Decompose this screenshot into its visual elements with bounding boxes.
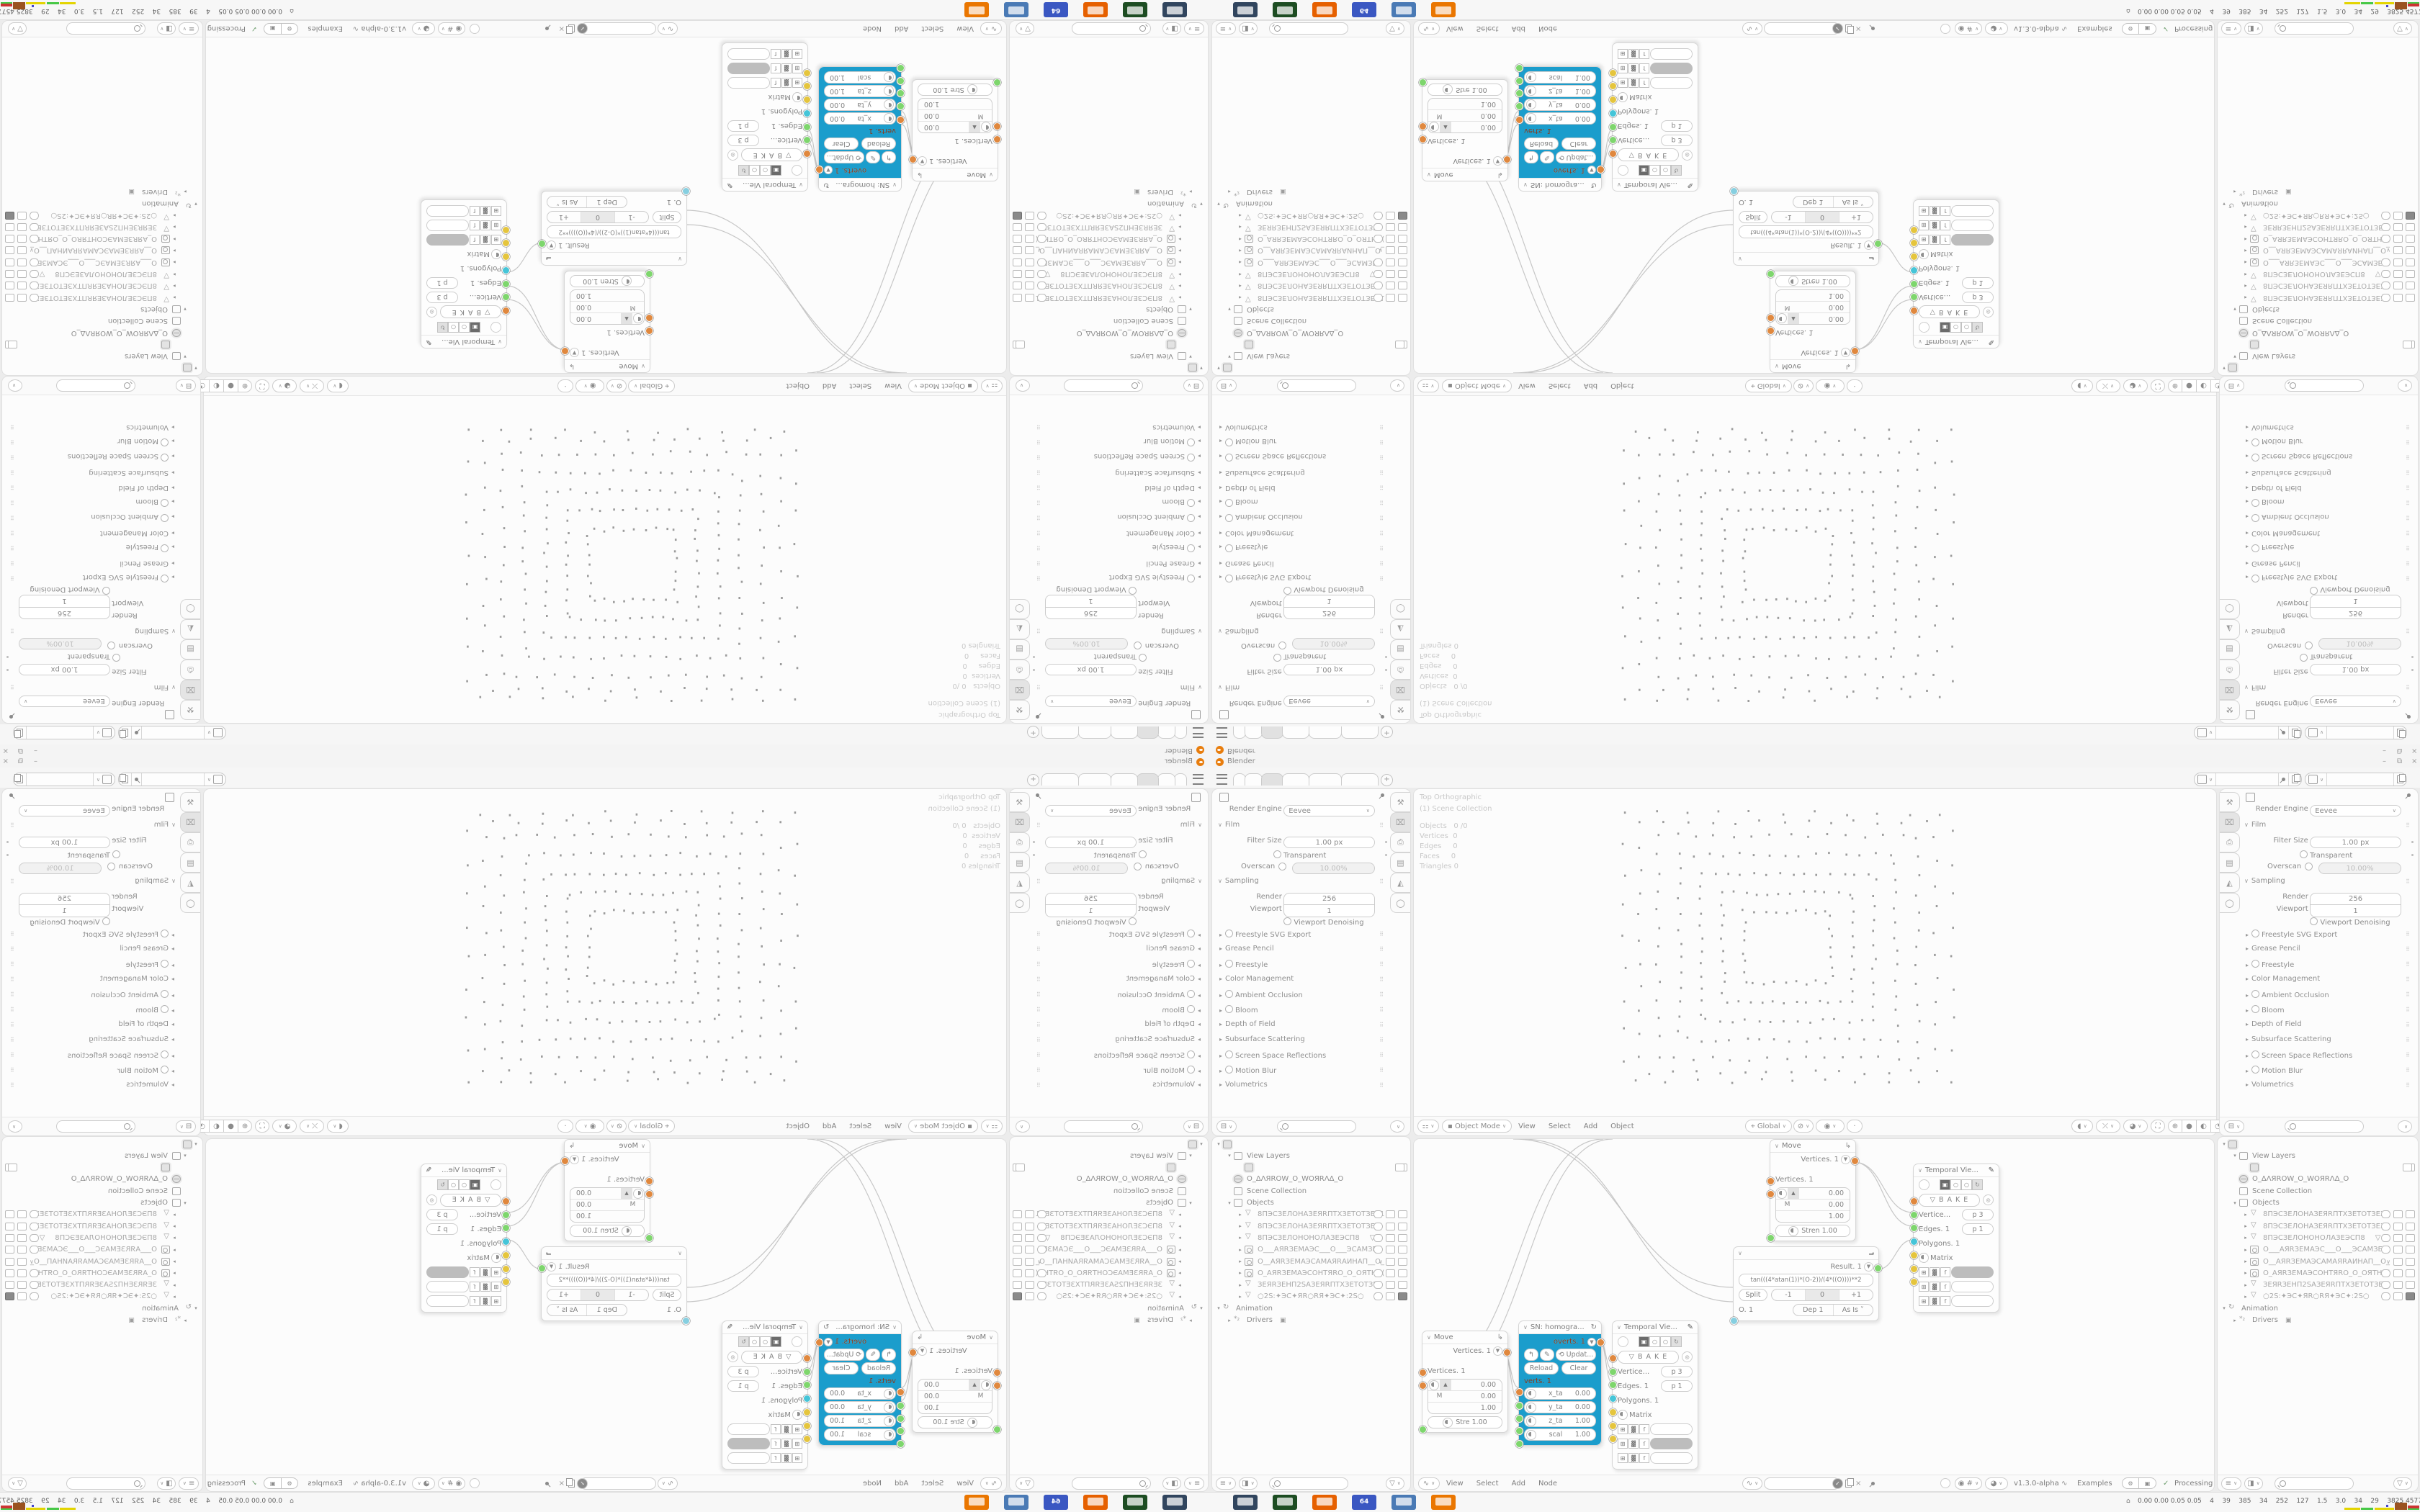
offset-button[interactable]: +1 <box>547 1290 581 1300</box>
properties-tab-view-layer[interactable]: ▤ <box>2220 852 2240 873</box>
outliner-row[interactable]: ▸8ПЭСЗЕЛОНАЗЕЯRПТХЗЕТОТЗЕХ <box>4 1220 178 1232</box>
search-input[interactable] <box>2275 1477 2354 1490</box>
node-move[interactable]: ∨Move↳Vertices. 1▼Vertices. 1▲0.00M0.001… <box>912 79 998 181</box>
new-tab-button[interactable]: + <box>1027 726 1039 738</box>
outliner-row[interactable]: Scene Collection <box>5 1185 189 1197</box>
node-socket[interactable] <box>1767 1177 1775 1185</box>
hide-eye-icon[interactable] <box>1037 1210 1047 1218</box>
datablock-name-field[interactable] <box>141 773 204 786</box>
disable-viewport-icon[interactable] <box>1025 235 1034 243</box>
editor-type-icon[interactable]: ∿∨ <box>980 23 1002 35</box>
hide-eye-icon[interactable] <box>1037 294 1047 302</box>
outliner-row[interactable]: ▾ <box>1215 362 1407 374</box>
output-icon-button[interactable]: ▓ <box>480 235 490 245</box>
outliner-row[interactable]: ▸○2S:✦ЭС✦ЯR○RЯ✦ЭС✦:2S○ <box>2242 1291 2416 1302</box>
datablock-selector-1[interactable]: ∨ <box>2194 726 2302 739</box>
node-socket[interactable] <box>1419 122 1427 130</box>
section-checkbox[interactable] <box>2251 960 2259 968</box>
new-tab-button[interactable]: + <box>1027 774 1039 786</box>
node-socket[interactable] <box>1874 1264 1882 1272</box>
clear-button[interactable]: Clear <box>1561 138 1596 150</box>
checkbox[interactable] <box>2305 863 2313 870</box>
disable-viewport-icon[interactable] <box>1025 258 1034 266</box>
gizmos-dropdown[interactable]: ⤫∨ <box>300 379 324 392</box>
section-checkbox[interactable] <box>1187 1050 1195 1058</box>
options-dropdown[interactable]: ∨ <box>8 379 22 392</box>
menu-view[interactable]: View <box>1518 1122 1536 1130</box>
display-mode-dropdown[interactable]: ◨∨ <box>1239 1477 1258 1490</box>
disable-render-icon[interactable] <box>1013 294 1022 302</box>
hide-eye-icon[interactable] <box>1373 1292 1383 1300</box>
display-mode-dropdown[interactable]: ◨∨ <box>1162 23 1181 35</box>
disable-render-icon[interactable] <box>1013 1210 1022 1218</box>
vector-field[interactable]: 0.00 <box>1798 302 1850 312</box>
display-mode-button[interactable]: ↻ <box>437 322 448 333</box>
outliner-row[interactable]: ▾ <box>1215 1138 1407 1150</box>
disable-viewport-icon[interactable] <box>1386 258 1395 266</box>
formula-field[interactable]: tan(((4*atan(1))*(O-2))/(4*((O))))**2 <box>547 225 681 238</box>
display-mode-button[interactable]: ↻ <box>1671 1336 1682 1347</box>
outliner-row[interactable]: ▾Animation <box>1013 1302 1205 1314</box>
disable-render-icon[interactable] <box>5 235 14 243</box>
disable-viewport-icon[interactable] <box>1386 1258 1395 1266</box>
hide-eye-icon[interactable] <box>30 258 39 266</box>
output-icon-button[interactable]: ſ <box>771 1439 781 1449</box>
output-icon-button[interactable]: ſ <box>771 63 781 73</box>
hide-eye-icon[interactable] <box>2381 1269 2390 1277</box>
node-socket[interactable] <box>1851 1157 1859 1165</box>
editor-type-icon[interactable]: ⊟∨ <box>176 1120 196 1133</box>
output-icon-button[interactable]: ⊞ <box>1919 235 1929 245</box>
node-socket[interactable] <box>1910 253 1918 261</box>
node-socket[interactable] <box>1730 1317 1738 1325</box>
gizmo-toggle[interactable]: ⊘∨ <box>1793 1120 1814 1133</box>
hide-eye-icon[interactable] <box>30 1210 39 1218</box>
editor-type-icon[interactable]: ≡∨ <box>1216 1477 1236 1490</box>
disable-render-icon[interactable] <box>1013 1281 1022 1289</box>
disable-render-icon[interactable] <box>2406 223 2415 231</box>
new-node-tree-button[interactable] <box>470 1478 480 1488</box>
examples-menu[interactable]: Examples <box>2077 25 2112 33</box>
disable-viewport-icon[interactable] <box>1025 1234 1034 1242</box>
outliner-row[interactable]: ▾Objects <box>1013 1197 1194 1209</box>
disable-render-icon[interactable] <box>2406 1234 2415 1242</box>
outliner-row[interactable] <box>1011 1162 1183 1174</box>
section-checkbox[interactable] <box>2251 1050 2259 1058</box>
disable-viewport-icon[interactable] <box>1386 270 1395 278</box>
node-socket[interactable] <box>803 137 811 145</box>
node-socket[interactable] <box>1767 1190 1775 1198</box>
pin-icon[interactable] <box>1870 26 1875 31</box>
outliner-row[interactable]: ▸O_АЯRЗЕМАЭСОНТЯRО_O_ОЯТНС( <box>2242 1267 2416 1279</box>
pin-icon[interactable] <box>9 793 14 798</box>
node-socket[interactable] <box>803 150 811 158</box>
checkbox[interactable] <box>2300 654 2308 662</box>
snapping-toggle[interactable]: ◉∨ <box>575 379 604 392</box>
section-checkbox[interactable] <box>1225 514 1233 522</box>
overscan-field[interactable]: 10.00% <box>1045 638 1128 649</box>
outliner-row[interactable]: ▸8ПЭСЗЕЛОНАЗЕЯRПТХЗЕТОТЗЕХ1 <box>1011 1209 1183 1220</box>
node-socket[interactable] <box>1874 240 1882 248</box>
checkbox[interactable] <box>102 917 110 925</box>
taskbar-app-image-viewer[interactable] <box>1004 2 1028 17</box>
gizmos-dropdown[interactable]: ⤫∨ <box>300 1120 324 1133</box>
output-icon-button[interactable]: ⊞ <box>792 1439 802 1449</box>
hide-eye-icon[interactable] <box>1373 1234 1383 1242</box>
menu-add[interactable]: Add <box>1584 1122 1597 1130</box>
properties-tab-scene[interactable]: ◭ <box>2220 873 2240 893</box>
gizmos-dropdown[interactable]: ⤫∨ <box>2096 1120 2120 1133</box>
hide-eye-icon[interactable] <box>1037 235 1047 243</box>
node-socket[interactable] <box>1851 347 1859 355</box>
taskbar-app-terminal[interactable] <box>1273 2 1297 17</box>
workspace-tab-3[interactable] <box>1261 773 1283 786</box>
vector-field[interactable]: 1.00 <box>570 1211 622 1222</box>
examples-menu[interactable]: Examples <box>308 25 343 33</box>
outliner-row[interactable]: ▸8ПЭСЗЕЛОНАЗЕЯRПТХЗЕТОТЗЕХ1 <box>1237 1209 1409 1220</box>
strength-field[interactable]: Stre 1.00 <box>1428 1416 1502 1428</box>
outliner-row[interactable]: ▾ <box>5 1138 200 1150</box>
output-icon-button[interactable]: ▓ <box>781 1424 792 1434</box>
outliner-row[interactable]: ▾View Layers <box>2231 351 2415 362</box>
outliner-row[interactable]: ▾Animation <box>2220 198 2415 210</box>
snapping-toggle[interactable]: ◉∨ <box>575 1120 604 1133</box>
unlink-icon[interactable]: × <box>559 1480 565 1488</box>
node-socket[interactable] <box>993 1426 1001 1434</box>
disable-render-icon[interactable] <box>1398 1292 1407 1300</box>
properties-tab-tool[interactable]: ⚒ <box>180 700 200 720</box>
filter-icon[interactable]: ▽∨ <box>1386 1477 1404 1490</box>
disable-render-icon[interactable] <box>1398 258 1407 266</box>
pin-icon[interactable] <box>544 26 550 31</box>
sn-tool-button[interactable]: ↰ <box>882 1349 896 1361</box>
output-icon-button[interactable]: ⊞ <box>491 206 501 216</box>
node-socket[interactable] <box>1609 123 1617 131</box>
output-icon-button[interactable]: ▓ <box>781 63 792 73</box>
disable-render-icon[interactable] <box>1398 1281 1407 1289</box>
split-button[interactable]: Split <box>653 212 681 224</box>
display-mode-button[interactable]: ▣ <box>470 1179 480 1190</box>
viewport-samples-field[interactable]: 1 <box>1283 595 1375 607</box>
section-checkbox[interactable] <box>2251 544 2259 552</box>
vector-field[interactable]: 0.00 <box>1798 1200 1850 1210</box>
section-checkbox[interactable] <box>161 438 169 446</box>
section-checkbox[interactable] <box>1225 1050 1233 1058</box>
disable-render-icon[interactable] <box>1013 1246 1022 1254</box>
node-socket[interactable] <box>803 96 811 104</box>
editor-type-icon[interactable]: ⊟∨ <box>1183 1120 1204 1133</box>
xray-toggle[interactable]: ⛶ <box>255 379 269 392</box>
hide-eye-icon[interactable] <box>1037 1234 1047 1242</box>
overlays-dropdown[interactable]: ◕∨ <box>2123 379 2148 392</box>
outliner-row[interactable] <box>1011 338 1183 350</box>
overscan-field[interactable]: 10.00% <box>19 863 102 874</box>
bake-button[interactable]: ▽ B A K E <box>440 1194 501 1207</box>
snapping-magnet-icon[interactable]: ◉ #∨ <box>438 23 465 35</box>
disable-viewport-icon[interactable] <box>2393 1234 2403 1242</box>
outliner-row[interactable]: ▸8ПЭСЗЕЛОНАЗЕЯRПТХЗЕТОТЗЕХ <box>1011 1220 1183 1232</box>
sn-field-z_ta[interactable]: z_ta1.00 <box>824 85 896 97</box>
output-icon-button[interactable]: ⊞ <box>1618 49 1628 59</box>
datablock-selector-2[interactable]: ∨ <box>13 773 115 786</box>
socket-value-field[interactable]: p 3 <box>426 292 458 303</box>
pin-icon[interactable] <box>1035 793 1040 798</box>
editor-type-icon[interactable]: ∿∨ <box>1418 1477 1440 1490</box>
datablock-icon[interactable]: ∨ <box>93 726 115 739</box>
options-dropdown[interactable]: ∨ <box>8 1120 22 1133</box>
hide-eye-icon[interactable] <box>1037 212 1047 220</box>
display-mode-button[interactable]: ↻ <box>1972 322 1983 333</box>
output-icon-button[interactable]: ⊞ <box>491 220 501 230</box>
output-icon-button[interactable]: ⊞ <box>491 235 501 245</box>
hide-eye-icon[interactable] <box>2381 1234 2390 1242</box>
bake-button[interactable]: ▽ B A K E <box>1618 1351 1679 1364</box>
outliner-row[interactable]: ▾Objects <box>2231 1197 2415 1209</box>
shading-material[interactable]: ◐ <box>209 1120 223 1133</box>
display-mode-button[interactable]: ▣ <box>771 165 781 176</box>
properties-tab-tool[interactable]: ⚒ <box>1390 792 1410 812</box>
hide-eye-icon[interactable] <box>2381 1246 2390 1254</box>
output-icon-button[interactable]: ▓ <box>1628 1453 1639 1463</box>
editor-type-icon[interactable]: ≡∨ <box>2221 23 2241 35</box>
outliner-row[interactable]: ▾ <box>1013 362 1205 374</box>
pin-icon[interactable] <box>2279 773 2289 786</box>
outliner-row[interactable]: O_ΔΛЯROW_O_WOЯRΛΔ_O <box>1013 1174 1194 1185</box>
render-samples-field[interactable]: 256 <box>1045 893 1137 905</box>
workspace-tab-2[interactable] <box>1245 773 1263 786</box>
vector-field[interactable]: 1.00 <box>570 290 622 301</box>
disable-viewport-icon[interactable] <box>17 223 27 231</box>
node-socket[interactable] <box>502 1197 510 1205</box>
node-socket[interactable] <box>502 1238 510 1246</box>
snapping-magnet-icon[interactable]: ◉ #∨ <box>1955 1477 1982 1490</box>
display-mode-button[interactable]: ○ <box>448 322 459 333</box>
update-button[interactable]: ⟲ Updat... <box>824 1349 864 1361</box>
split-button[interactable]: Split <box>1739 1289 1767 1301</box>
properties-tab-view-layer[interactable]: ▤ <box>180 639 200 660</box>
socket-value-field[interactable]: p 1 <box>426 277 458 289</box>
shading-material[interactable]: ◐ <box>2197 1120 2211 1133</box>
sn-field-z_ta[interactable]: z_ta1.00 <box>824 1415 896 1427</box>
formula-field[interactable]: tan(((4*atan(1))*(O-2))/(4*((O))))**2 <box>1739 1274 1873 1287</box>
editor-type-icon[interactable]: ⚏∨ <box>981 379 1003 392</box>
socket-value-field[interactable]: p 3 <box>1962 292 1994 303</box>
split-button[interactable]: Split <box>1739 212 1767 224</box>
hide-eye-icon[interactable] <box>2381 270 2390 278</box>
outliner-row[interactable]: ▸O_АЯRЗЕМАЭСОНТЯRО_O_ОЯТНС( <box>1011 1267 1183 1279</box>
taskbar-app-firefox[interactable] <box>1312 1495 1337 1510</box>
outliner-row[interactable]: Scene Collection <box>1226 1185 1407 1197</box>
node-socket[interactable] <box>815 1338 823 1346</box>
pin-icon[interactable] <box>2406 793 2411 798</box>
menu-node[interactable]: Node <box>1538 1480 1557 1488</box>
node-socket[interactable] <box>803 1354 811 1362</box>
outliner-row[interactable]: ▸ЗЕЯRЗЕНП2SАЗЕЯRПТХЗЕТОТЗЕ) <box>2242 1279 2416 1291</box>
datablock-name-field[interactable] <box>2216 726 2279 739</box>
node-socket[interactable] <box>803 123 811 131</box>
shading-wireframe[interactable]: ⊕ <box>2168 379 2182 392</box>
hide-eye-icon[interactable] <box>1037 1269 1047 1277</box>
outliner-row[interactable]: ▸ЗЕЯRЗЕНП2SАЗЕЯRПТХЗЕТОТЗЕ) <box>1011 1279 1183 1291</box>
section-checkbox[interactable] <box>161 930 169 937</box>
output-icon-button[interactable]: ▓ <box>1930 206 1940 216</box>
disable-viewport-icon[interactable] <box>1025 223 1034 231</box>
section-checkbox[interactable] <box>1187 930 1195 937</box>
checkbox[interactable] <box>107 642 115 649</box>
node-socket[interactable] <box>1609 1422 1617 1430</box>
outliner-row[interactable] <box>4 338 178 350</box>
close-button[interactable]: × <box>3 747 9 755</box>
disable-render-icon[interactable] <box>5 282 14 289</box>
node-socket[interactable] <box>1609 1381 1617 1389</box>
disable-render-icon[interactable] <box>1398 294 1407 302</box>
disable-viewport-icon[interactable] <box>2393 247 2403 255</box>
output-icon-button[interactable]: ſ <box>1639 63 1649 73</box>
disable-viewport-icon[interactable] <box>1025 1281 1034 1289</box>
menu-view[interactable]: View <box>1518 382 1536 390</box>
section-checkbox[interactable] <box>1225 499 1233 507</box>
output-icon-button[interactable]: ▓ <box>480 1282 490 1292</box>
hide-eye-icon[interactable] <box>2381 1210 2390 1218</box>
offset-button[interactable]: 0 <box>581 1290 615 1300</box>
section-checkbox[interactable] <box>2251 438 2259 446</box>
filter-icon[interactable]: ▽∨ <box>1016 23 1034 35</box>
render-engine-dropdown[interactable]: Eevee∨ <box>2310 696 2401 707</box>
display-mode-button[interactable]: ○ <box>448 1179 459 1190</box>
section-checkbox[interactable] <box>1225 575 1233 582</box>
editor-type-icon[interactable]: ⊟∨ <box>1183 379 1204 392</box>
outliner-row[interactable]: ▸Drivers▣ <box>1013 1315 1194 1326</box>
section-checkbox[interactable] <box>1225 960 1233 968</box>
node-socket[interactable] <box>803 69 811 77</box>
overscan-field[interactable]: 10.00% <box>2318 638 2401 649</box>
node-socket[interactable] <box>897 1427 905 1435</box>
workspace-tab-1[interactable] <box>1174 726 1187 739</box>
outliner-row[interactable]: ▸8ПЭСЗЕЛОНАЗЕЯRПТХЗЕТОТЗЕХ1 <box>2242 292 2416 303</box>
output-icon-button[interactable]: ⊞ <box>792 63 802 73</box>
hide-eye-icon[interactable] <box>2381 1281 2390 1289</box>
node-socket[interactable] <box>1515 1402 1523 1410</box>
output-icon-button[interactable]: ▓ <box>781 1439 792 1449</box>
disable-viewport-icon[interactable] <box>2393 282 2403 289</box>
outliner-row[interactable]: ▸8ПЭСЗЕЛОНОНОЛАЗЕЭСП8▽ <box>4 269 178 280</box>
sn-tool-button[interactable]: ✎ <box>866 151 880 163</box>
render-samples-field[interactable]: 256 <box>19 893 110 905</box>
display-mode-dropdown[interactable]: ◨∨ <box>1162 1477 1181 1490</box>
taskbar-app-image-viewer[interactable] <box>1391 2 1416 17</box>
search-input[interactable] <box>66 23 145 35</box>
socket-value-field[interactable]: p 3 <box>1661 135 1693 146</box>
outliner-row[interactable]: ▸8ПЭСЗЕЛОНОНОЛАЗЕЭСП8▽ <box>2242 269 2416 280</box>
gizmo-toggle[interactable]: ⊘∨ <box>1793 379 1814 392</box>
output-icon-button[interactable]: ▓ <box>480 206 490 216</box>
node-socket[interactable] <box>502 253 510 261</box>
node-socket[interactable] <box>1730 187 1738 195</box>
node-socket[interactable] <box>682 187 690 195</box>
checkbox[interactable] <box>1134 863 1142 870</box>
workspace-tab-4[interactable] <box>1282 726 1309 739</box>
filter-size-field[interactable]: 1.00 px <box>19 837 110 848</box>
node-socket[interactable] <box>502 1224 510 1232</box>
formula-field[interactable]: tan(((4*atan(1))*(O-2))/(4*((O))))**2 <box>547 1274 681 1287</box>
node-socket[interactable] <box>897 77 905 85</box>
unlink-icon[interactable]: × <box>1855 25 1861 33</box>
fake-user-shield-icon[interactable]: ✓ <box>577 1478 588 1489</box>
node-tree-icon[interactable]: ∿∨ <box>658 23 678 35</box>
strength-field[interactable]: Stren 1.00 <box>1775 1225 1850 1237</box>
menu-node[interactable]: Node <box>1538 25 1557 33</box>
output-icon-button[interactable]: ſ <box>1940 206 1950 216</box>
render-engine-dropdown[interactable]: Eevee∨ <box>1045 696 1137 707</box>
vector-field[interactable]: 0.00 <box>1451 122 1502 132</box>
display-mode-button[interactable]: ○ <box>1950 1179 1961 1190</box>
outliner-row[interactable] <box>2242 1162 2416 1174</box>
node-move[interactable]: ∨Move↳Vertices. 1▼Vertices. 1▲0.00M0.001… <box>1770 271 1856 373</box>
disable-render-icon[interactable] <box>1398 1246 1407 1254</box>
output-path-field[interactable] <box>727 1452 770 1464</box>
menu-add[interactable]: Add <box>1584 382 1597 390</box>
hide-eye-icon[interactable] <box>30 1223 39 1230</box>
vector-field[interactable]: 0.00 <box>1451 110 1502 121</box>
node-temporal-viewer[interactable]: ∨Temporal Vie...✎▣○○↻▽ B A K E◎Vertice..… <box>1913 199 1999 348</box>
properties-tab-render[interactable]: ⌧ <box>2220 812 2240 832</box>
node-socket[interactable] <box>1515 1440 1523 1448</box>
hide-eye-icon[interactable] <box>2381 294 2390 302</box>
output-path-field[interactable] <box>727 48 770 60</box>
datablock-selector-2[interactable]: ∨ <box>13 726 115 739</box>
node-socket[interactable] <box>1419 1426 1427 1434</box>
output-icon-button[interactable]: ▓ <box>781 1453 792 1463</box>
editor-type-icon[interactable]: ≡∨ <box>1216 23 1236 35</box>
new-node-tree-button[interactable] <box>470 24 480 34</box>
checkbox[interactable] <box>1278 863 1286 870</box>
output-path-field[interactable] <box>1650 1452 1693 1464</box>
gizmo-toggle[interactable]: ⊘∨ <box>606 1120 627 1133</box>
display-mode-dropdown[interactable]: ◨∨ <box>157 23 176 35</box>
render-samples-field[interactable]: 256 <box>2310 607 2401 619</box>
outliner-row[interactable]: ▸O__АЯRЗЕМАЭСАМАЯRАИНАП__O_∨ <box>2242 1256 2416 1267</box>
hide-eye-icon[interactable] <box>1037 258 1047 266</box>
outliner-row[interactable]: ▸O___АЯRЗЕМАЭС___O___ЭСАМЗЕ <box>1011 1244 1183 1256</box>
node-sn-serpens[interactable]: ∨SN: homogra...↻overts. 1▼↰✎⟲ Updat...Re… <box>1518 1320 1602 1446</box>
node-socket[interactable] <box>1609 1354 1617 1362</box>
disable-viewport-icon[interactable] <box>1025 212 1034 220</box>
node-socket[interactable] <box>897 90 905 98</box>
workspace-tab-3[interactable] <box>1261 726 1283 739</box>
editor-type-icon[interactable]: ⚏∨ <box>1417 379 1439 392</box>
gizmo-toggle[interactable]: ⊘∨ <box>606 379 627 392</box>
pin-icon[interactable] <box>131 773 141 786</box>
node-socket[interactable] <box>1515 116 1523 124</box>
maximize-button[interactable]: ⧉ <box>18 757 23 765</box>
vector-field[interactable]: 0.00 <box>1451 1380 1502 1390</box>
outliner-row[interactable]: ▸8ПЭСЗЕЛОНОНОЛАЗЕЭСП8▽ <box>2242 1232 2416 1243</box>
outliner-row[interactable]: ▸8ПЭСЗЕЛОНАЗЕЯRПТХЗЕТОТЗЕХ1 <box>1011 292 1183 303</box>
editor-type-icon[interactable]: ⚏∨ <box>981 1120 1003 1133</box>
properties-tab-output[interactable]: ⎙ <box>1390 660 1410 680</box>
orientation-dropdown[interactable]: ⌖ Global∨ <box>1745 379 1792 392</box>
node-sn-serpens[interactable]: ∨SN: homogra...↻overts. 1▼↰✎⟲ Updat...Re… <box>818 1320 902 1446</box>
node-socket[interactable] <box>897 1440 905 1448</box>
output-path-field[interactable] <box>426 1281 469 1292</box>
collapse-icon[interactable]: ∨ <box>30 1259 34 1265</box>
outliner-row[interactable]: ▾Animation <box>1215 1302 1407 1314</box>
display-mode-dropdown[interactable]: ◨∨ <box>157 1477 176 1490</box>
update-button[interactable]: ⟲ Updat... <box>1556 1349 1596 1361</box>
editor-type-icon[interactable]: ≡∨ <box>1184 23 1204 35</box>
disable-render-icon[interactable] <box>1013 1292 1022 1300</box>
minimize-button[interactable]: – <box>2383 757 2386 765</box>
